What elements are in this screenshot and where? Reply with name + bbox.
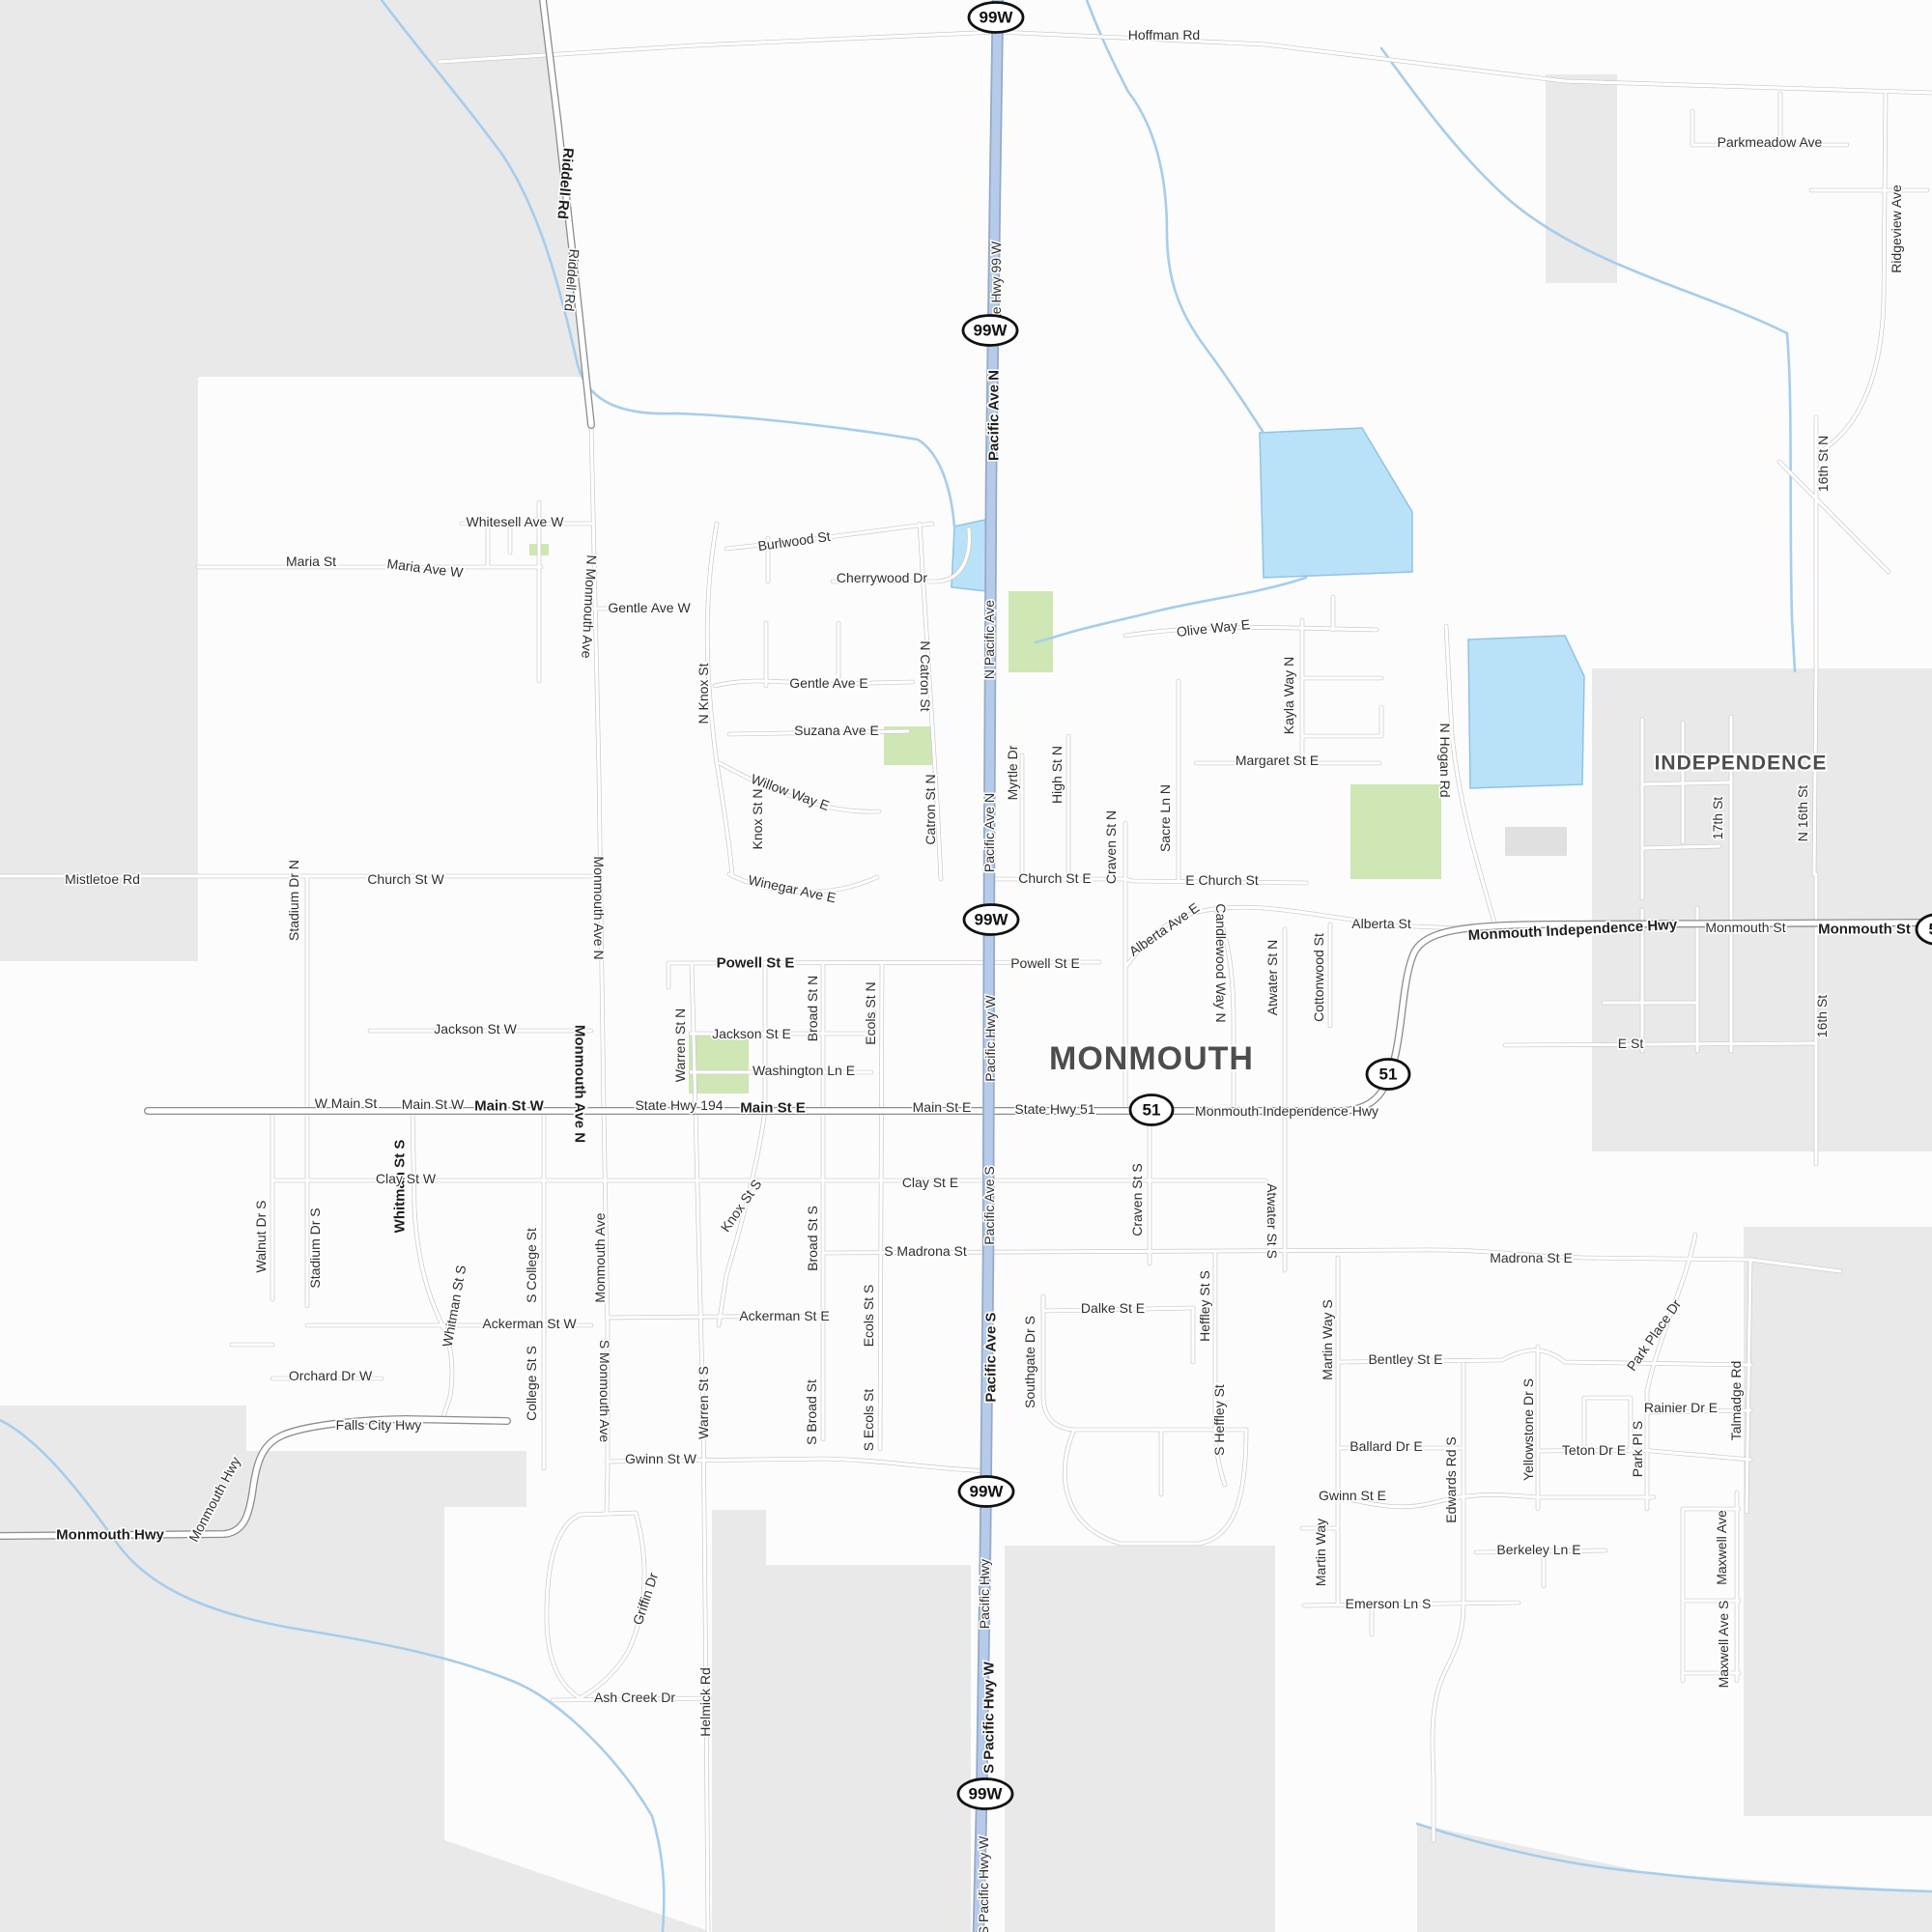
street-label: E St — [1618, 1036, 1644, 1051]
street-label: Olive Way E — [1176, 616, 1251, 639]
street-label: Catron St N — [923, 774, 938, 844]
highway-shield: 99W — [964, 905, 1018, 935]
stream — [1036, 578, 1306, 642]
street-label: Stadium Dr N — [286, 860, 301, 941]
street-label: Teton Dr E — [1562, 1442, 1626, 1458]
street-label: S Heffley St — [1211, 1384, 1227, 1456]
map-canvas[interactable]: Monmouth and Independence street map Hof… — [0, 0, 1932, 1932]
street-label: Clay St W — [376, 1171, 437, 1186]
minor-road — [412, 1111, 452, 1420]
street-label: Main St E — [740, 1100, 806, 1117]
street-label: E Church St — [1185, 872, 1259, 888]
park-area — [1009, 591, 1053, 672]
shield-number: 51 — [1379, 1065, 1398, 1084]
water-body — [1468, 636, 1584, 788]
urban-area — [712, 1510, 971, 1932]
street-label: Atwater St S — [1264, 1183, 1280, 1259]
street-label: Alberta Ave E — [1126, 899, 1202, 959]
street-label: S Madrona St — [884, 1243, 967, 1259]
street-label: Walnut Dr S — [253, 1201, 269, 1273]
street-label: Pacific Hwy — [977, 1559, 992, 1629]
water-body — [1260, 428, 1412, 578]
street-label: Broad St S — [805, 1206, 820, 1271]
street-label: Park Pl S — [1630, 1421, 1645, 1477]
street-label: Burlwood St — [757, 528, 832, 554]
street-label: Monmouth Independence Hwy — [1195, 1103, 1378, 1119]
street-label: Knox St N — [750, 788, 765, 849]
street-label: Church St E — [1018, 870, 1091, 886]
shield-number: 99W — [970, 1483, 1005, 1501]
street-label: Suzana Ave E — [794, 723, 879, 738]
street-label: 16th St N — [1815, 436, 1831, 492]
highway-shield: 99W — [963, 316, 1017, 346]
street-label: Winegar Ave E — [747, 872, 838, 906]
building-footprint — [1505, 827, 1567, 856]
street-label: Pacific Ave N — [986, 370, 1003, 461]
street-label: Main St W — [402, 1096, 465, 1112]
minor-road — [1302, 707, 1381, 736]
street-label: Jackson St W — [434, 1021, 517, 1037]
street-label: Ecols St N — [863, 981, 878, 1044]
street-label: Main St E — [913, 1099, 972, 1115]
street-label: Berkeley Ln E — [1496, 1542, 1580, 1557]
urban-area — [1005, 1546, 1275, 1932]
street-label: Warren St N — [672, 1009, 688, 1083]
street-label: Maxwell Ave S — [1716, 1601, 1731, 1689]
street-label: Ackerman St W — [482, 1316, 577, 1331]
street-label: Dalke St E — [1081, 1300, 1145, 1316]
street-label: Cottonwood St — [1311, 933, 1326, 1022]
street-label: Ridgeview Ave — [1889, 185, 1904, 273]
minor-road — [1642, 846, 1719, 848]
street-label: Atwater St N — [1264, 940, 1280, 1016]
urban-area — [1546, 74, 1617, 283]
city-label: MONMOUTH — [1049, 1040, 1254, 1077]
street-label: Craven St N — [1103, 810, 1119, 884]
highway-shield: 99W — [959, 1477, 1013, 1507]
minor-road — [1642, 782, 1729, 784]
minor-road — [880, 963, 882, 1449]
minor-road — [607, 1468, 608, 1513]
street-label: Pacific Hwy W — [982, 994, 998, 1081]
street-label: Candlewood Way N — [1213, 903, 1229, 1022]
shield-number: 99W — [974, 322, 1009, 340]
street-label: Monmouth Hwy — [56, 1527, 164, 1544]
street-label: Martin Way — [1313, 1519, 1328, 1586]
street-label: Whitman St S — [392, 1140, 409, 1234]
street-label: Orchard Dr W — [289, 1368, 373, 1383]
highway-shield: 99W — [969, 3, 1023, 33]
minor-road — [1125, 627, 1377, 636]
street-label: Margaret St E — [1236, 753, 1319, 768]
street-label: Sacre Ln N — [1157, 784, 1173, 852]
street-label: Stadium Dr S — [307, 1207, 323, 1288]
street-label: Powell St E — [717, 955, 795, 972]
street-label: Talmadge Rd — [1728, 1361, 1744, 1441]
street-label: Monmouth Ave — [592, 1212, 608, 1302]
street-label: Rainier Dr E — [1644, 1400, 1718, 1415]
street-label: S Pacific Hwy W — [976, 1835, 991, 1932]
urban-area — [1417, 1824, 1932, 1932]
street-label: Monmouth St — [1818, 922, 1911, 938]
street-label: Washington Ln E — [753, 1063, 855, 1078]
minor-road — [1505, 1043, 1814, 1045]
street-label: Heffley St S — [1197, 1270, 1212, 1342]
street-label: Gwinn St W — [625, 1451, 697, 1466]
map-viewport[interactable]: Monmouth and Independence street map Hof… — [0, 0, 1932, 1932]
street-label: N Pacific Ave — [981, 600, 997, 679]
street-label: Bentley St E — [1368, 1351, 1442, 1367]
street-label: S Pacific Hwy W — [981, 1661, 998, 1774]
street-label: S Ecols St — [861, 1389, 876, 1452]
shield-number: 51 — [1143, 1101, 1161, 1120]
street-label: Monmouth Ave N — [591, 856, 607, 959]
street-label: Monmouth St — [1705, 920, 1785, 935]
street-label: Church St W — [367, 871, 444, 887]
street-label: Whitman St S — [440, 1264, 469, 1348]
city-label: INDEPENDENCE — [1655, 753, 1828, 775]
street-label: Powell St E — [1010, 955, 1080, 971]
street-label: Maria St — [286, 554, 336, 569]
street-label: Ash Creek Dr — [594, 1690, 675, 1705]
stream — [1087, 0, 1264, 433]
street-label: Martin Way S — [1320, 1299, 1335, 1380]
urban-area — [1744, 1227, 1932, 1816]
minor-road — [1779, 462, 1889, 572]
street-label: State Hwy 194 — [635, 1097, 723, 1113]
street-label: High St N — [1049, 746, 1065, 804]
street-label: Main St W — [474, 1098, 545, 1115]
minor-road-casing — [412, 1111, 452, 1420]
street-label: 16th St — [1814, 995, 1830, 1037]
street-label: Broad St N — [805, 976, 820, 1041]
street-label: Gentle Ave W — [608, 600, 691, 615]
street-label: S Broad St — [804, 1379, 819, 1445]
minor-road — [547, 1515, 580, 1698]
shield-number: 51 — [1929, 921, 1932, 939]
street-label: Gentle Ave E — [789, 675, 867, 691]
shield-number: 99W — [975, 911, 1009, 929]
street-label: Craven St S — [1129, 1163, 1145, 1236]
minor-road-casing — [547, 1515, 580, 1698]
highway-shield: 99W — [958, 1779, 1012, 1809]
street-label: Whitesell Ave W — [467, 514, 565, 529]
highway-shield: 51 — [1367, 1060, 1409, 1090]
street-label: N Knox St — [696, 663, 711, 724]
street-label: Warren St S — [696, 1366, 711, 1439]
street-label: Maria Ave W — [386, 555, 465, 581]
street-label: Madrona St E — [1490, 1250, 1573, 1265]
street-label: S College St — [524, 1228, 539, 1303]
street-label: Mistletoe Rd — [65, 871, 140, 887]
street-label: Ballard Dr E — [1350, 1438, 1422, 1454]
street-label: Ecols St S — [861, 1285, 876, 1348]
street-label: Jackson St E — [712, 1026, 791, 1041]
street-label: Monmouth Ave N — [572, 1025, 588, 1143]
street-label: N Hogan Rd — [1437, 723, 1453, 797]
street-label: S Monmouth Ave — [597, 1340, 612, 1443]
park-area — [1350, 784, 1441, 879]
street-label: Maxwell Ave — [1714, 1510, 1729, 1585]
street-label: Edwards Rd S — [1443, 1436, 1459, 1522]
street-label: N Catron St — [918, 640, 933, 711]
shield-number: 99W — [980, 9, 1014, 27]
street-label: Hoffman Rd — [1128, 27, 1200, 43]
street-label: Emerson Ln S — [1346, 1596, 1432, 1611]
street-label: Pacific Ave S — [981, 1166, 997, 1244]
street-label: Griffin Dr — [630, 1571, 662, 1627]
street-label: W Main St — [315, 1095, 378, 1111]
street-label: Yellowstone Dr S — [1520, 1378, 1536, 1481]
urban-area — [444, 1840, 712, 1932]
street-label: Falls City Hwy — [336, 1417, 422, 1433]
street-label: N 16th St — [1795, 785, 1810, 841]
street-label: Southgate Dr S — [1022, 1316, 1037, 1408]
street-label: Pacific Ave N — [981, 793, 997, 872]
street-label: 17th St — [1710, 797, 1725, 839]
minor-road-casing — [1302, 707, 1381, 736]
street-label: Ackerman St E — [739, 1308, 829, 1323]
street-label: State Hwy 51 — [1014, 1101, 1094, 1117]
street-label: Pacific Ave S — [983, 1312, 1000, 1402]
minor-road — [707, 524, 732, 876]
street-label: College St S — [524, 1346, 539, 1421]
street-label: Cherrywood Dr — [837, 570, 927, 585]
street-label: Clay St E — [902, 1175, 958, 1190]
street-label: Myrtle Dr — [1005, 745, 1020, 800]
highway-shield: 51 — [1130, 1095, 1173, 1125]
street-label: Kayla Way N — [1281, 657, 1296, 734]
street-label: Parkmeadow Ave — [1718, 134, 1823, 150]
street-label: Gwinn St E — [1319, 1488, 1386, 1503]
shield-number: 99W — [969, 1785, 1004, 1804]
street-label: Helmick Rd — [697, 1667, 713, 1737]
street-label: Alberta St — [1351, 916, 1411, 931]
